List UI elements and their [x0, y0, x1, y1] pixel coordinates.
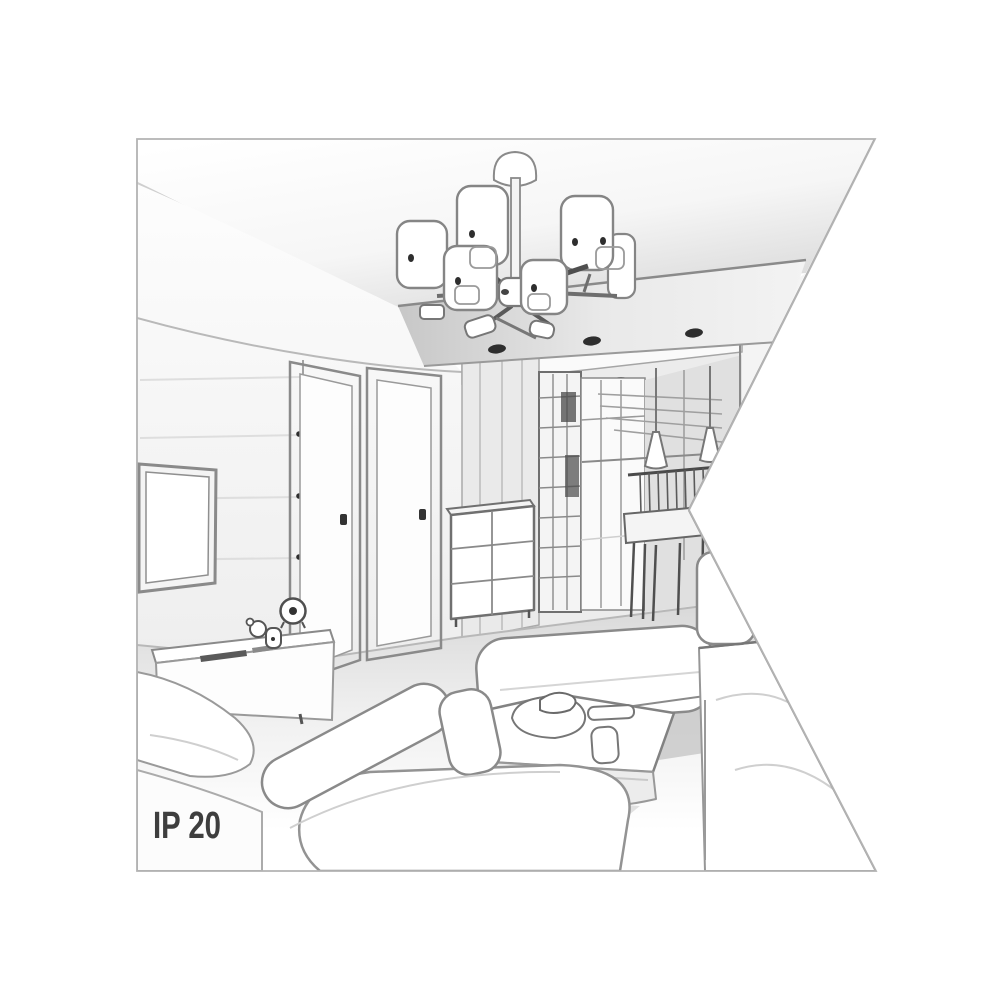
room-sketch: IP 20 — [0, 0, 1000, 1000]
dining-back-wall — [645, 355, 742, 612]
shade — [561, 196, 613, 270]
right-sofa-armrest — [697, 552, 755, 644]
wardrobe-grid — [539, 372, 581, 612]
right-sofa — [697, 552, 876, 871]
pastry — [540, 693, 576, 713]
shade — [397, 221, 447, 288]
chest-of-drawers — [447, 500, 534, 627]
ip-rating-label: IP 20 — [153, 805, 221, 847]
product-room-illustration: IP 20 — [0, 0, 1000, 1000]
door-right — [367, 368, 441, 660]
cup — [591, 726, 619, 764]
chandelier-rod — [511, 178, 520, 286]
back-window — [581, 378, 645, 610]
tv-screen — [139, 464, 216, 592]
door-handle — [340, 514, 347, 525]
plate — [588, 705, 635, 720]
alarm-clock — [281, 599, 306, 629]
door-handle — [419, 509, 426, 520]
